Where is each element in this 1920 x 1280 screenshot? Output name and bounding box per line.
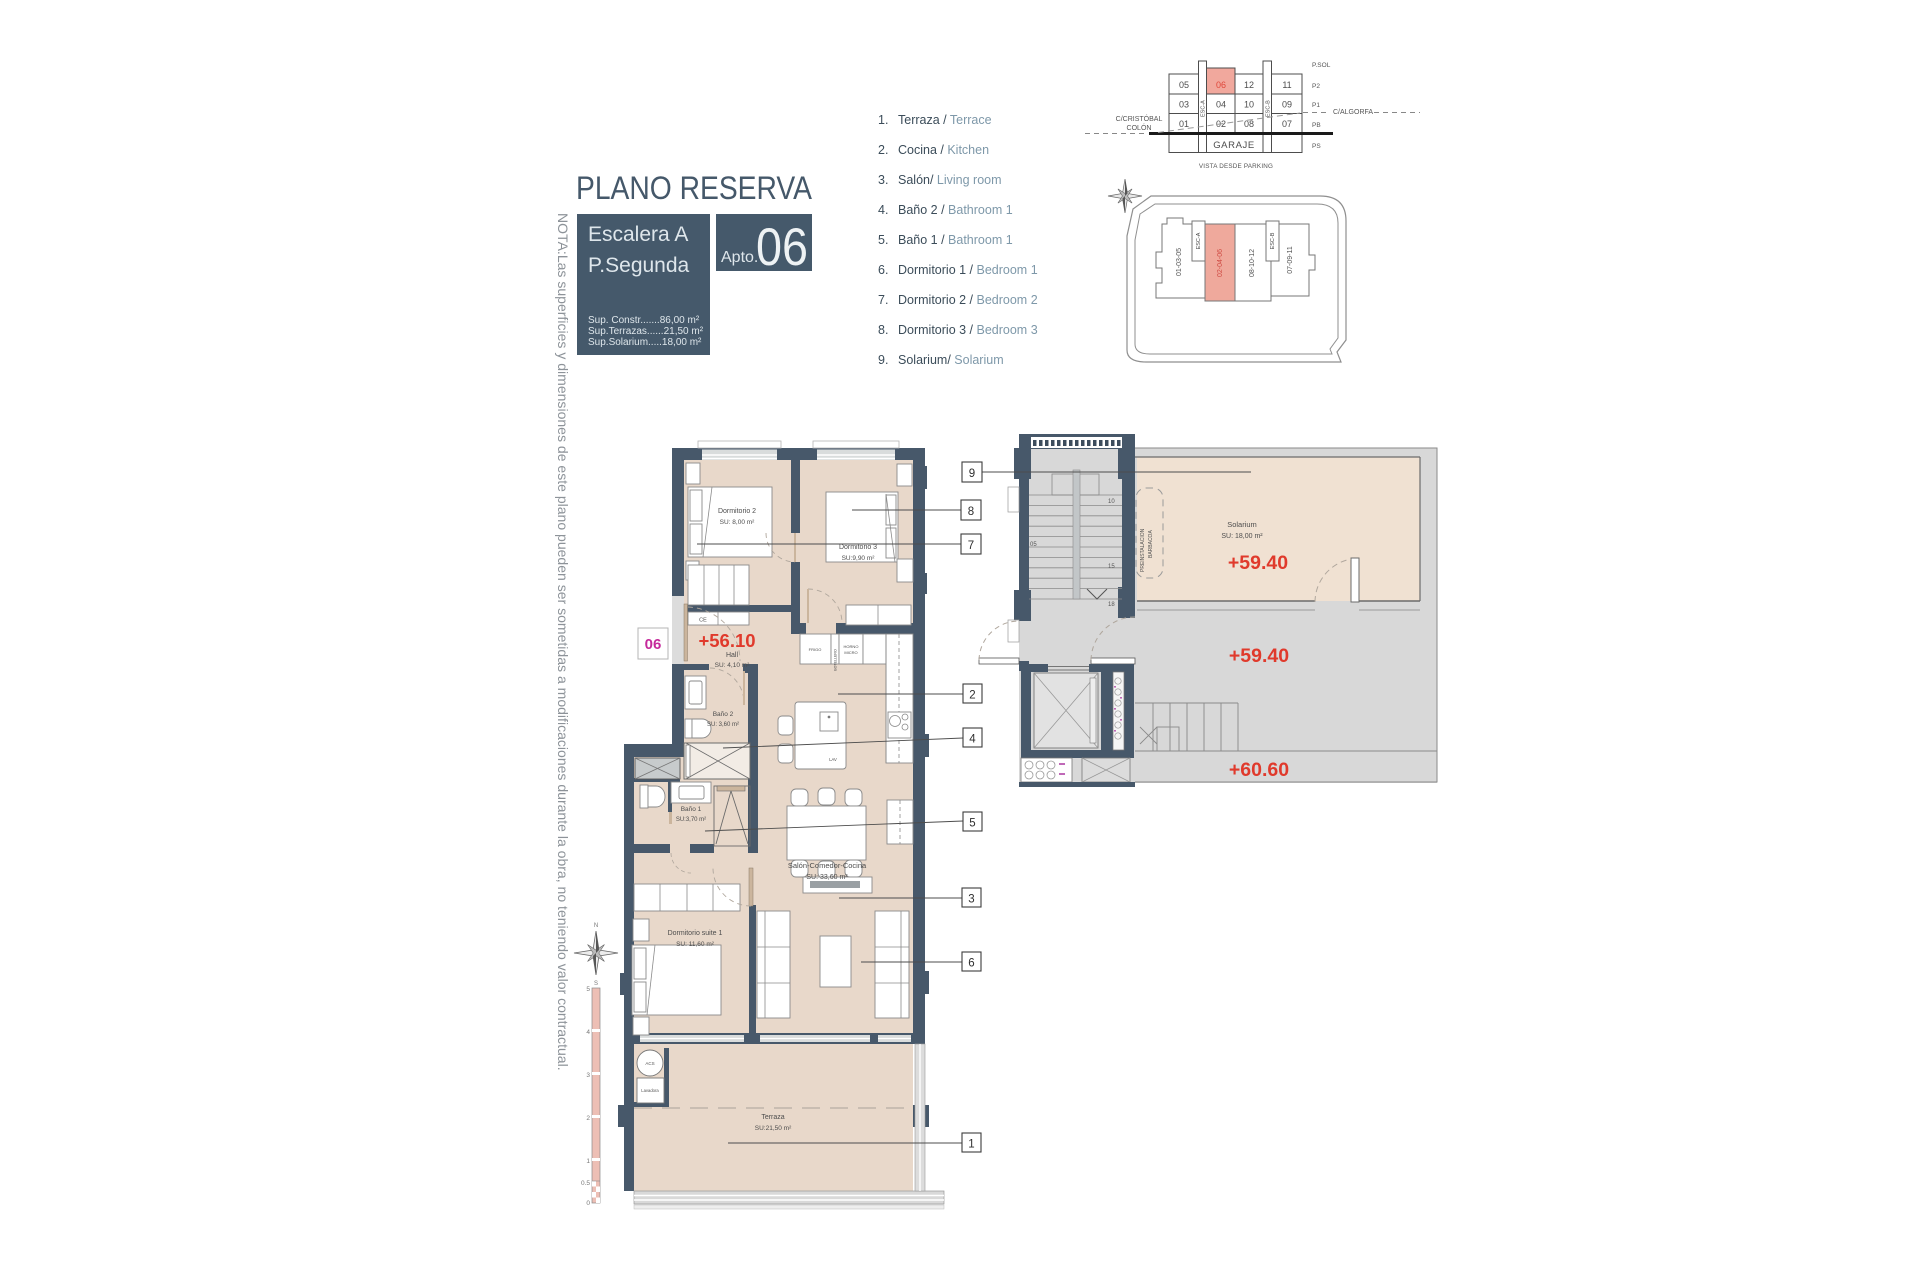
- svg-text:P2: P2: [1312, 83, 1320, 90]
- svg-text:Solarium: Solarium: [1227, 520, 1257, 529]
- svg-text:05: 05: [1179, 80, 1189, 90]
- svg-text:Terraza: Terraza: [761, 1114, 784, 1121]
- svg-text:Sup.Solarium.....18,00 m²: Sup.Solarium.....18,00 m²: [588, 337, 702, 348]
- svg-text:ESC-A: ESC-A: [1201, 100, 1207, 117]
- svg-text:PLANO RESERVA: PLANO RESERVA: [576, 170, 813, 206]
- svg-text:Terraza / Terrace: Terraza / Terrace: [898, 113, 992, 127]
- svg-text:6: 6: [968, 958, 974, 970]
- svg-text:+56.10: +56.10: [698, 630, 755, 651]
- svg-text:C/ALGORFA: C/ALGORFA: [1333, 109, 1373, 116]
- svg-text:8: 8: [968, 506, 974, 518]
- svg-text:Dormitorio 3: Dormitorio 3: [839, 544, 877, 551]
- svg-text:ESC-B: ESC-B: [1266, 100, 1272, 117]
- svg-text:SU: 33,60 m²: SU: 33,60 m²: [806, 874, 848, 881]
- svg-text:07: 07: [1282, 119, 1292, 129]
- svg-text:PREINSTALACION: PREINSTALACION: [1140, 528, 1146, 572]
- svg-text:SU: 18,00 m²: SU: 18,00 m²: [1221, 533, 1263, 540]
- svg-text:Dormitorio 2: Dormitorio 2: [718, 508, 756, 515]
- svg-text:08-10-12: 08-10-12: [1249, 249, 1256, 277]
- svg-text:LAV: LAV: [829, 757, 837, 762]
- svg-text:Escalera A: Escalera A: [588, 223, 688, 246]
- svg-text:CE: CE: [699, 618, 707, 624]
- svg-text:SU: 11,60 m²: SU: 11,60 m²: [676, 941, 715, 948]
- svg-text:2: 2: [969, 690, 975, 702]
- svg-text:3: 3: [586, 1072, 590, 1079]
- svg-text:5: 5: [969, 818, 975, 830]
- svg-text:VISTA DESDE PARKING: VISTA DESDE PARKING: [1199, 163, 1273, 170]
- svg-text:11: 11: [1282, 80, 1291, 90]
- svg-text:SU:9,90 m²: SU:9,90 m²: [842, 555, 876, 562]
- svg-text:+59.40: +59.40: [1228, 552, 1288, 574]
- svg-text:Baño 2 / Bathroom 1: Baño 2 / Bathroom 1: [898, 203, 1013, 217]
- svg-text:4: 4: [586, 1029, 590, 1036]
- svg-text:06: 06: [1216, 80, 1226, 90]
- svg-text:Dormitorio 2 / Bedroom 2: Dormitorio 2 / Bedroom 2: [898, 293, 1038, 307]
- svg-text:Salón/ Living room: Salón/ Living room: [898, 173, 1002, 187]
- svg-text:5.: 5.: [878, 233, 888, 247]
- svg-text:ESC-B: ESC-B: [1270, 232, 1276, 249]
- svg-text:9.: 9.: [878, 353, 888, 367]
- svg-text:07-09-11: 07-09-11: [1287, 246, 1294, 274]
- svg-text:SU:21,50 m²: SU:21,50 m²: [755, 1125, 792, 1132]
- svg-text:15: 15: [1108, 564, 1115, 570]
- svg-text:5: 5: [586, 986, 590, 993]
- svg-text:C/CRISTÓBAL: C/CRISTÓBAL: [1116, 114, 1163, 123]
- svg-text:ESC-A: ESC-A: [1196, 232, 1202, 249]
- svg-text:10: 10: [1108, 499, 1115, 505]
- svg-text:SU: 3,60 m²: SU: 3,60 m²: [707, 722, 739, 728]
- svg-text:10: 10: [1244, 100, 1254, 110]
- svg-text:COLÓN: COLÓN: [1127, 123, 1152, 132]
- svg-text:02-04-06: 02-04-06: [1217, 249, 1224, 277]
- svg-text:8.: 8.: [878, 323, 888, 337]
- svg-text:4: 4: [969, 734, 976, 746]
- svg-text:Sup. Constr.......86,00 m²: Sup. Constr.......86,00 m²: [588, 315, 700, 326]
- svg-text:BOTELLERO: BOTELLERO: [834, 649, 838, 671]
- svg-text:HORNO: HORNO: [844, 644, 859, 649]
- svg-text:6.: 6.: [878, 263, 888, 277]
- svg-text:2.: 2.: [878, 143, 888, 157]
- svg-text:+60.60: +60.60: [1229, 759, 1289, 781]
- svg-text:Dormitorio 3 / Bedroom 3: Dormitorio 3 / Bedroom 3: [898, 323, 1038, 337]
- svg-text:1.: 1.: [878, 113, 888, 127]
- svg-text:BARBACOA: BARBACOA: [1148, 530, 1154, 558]
- svg-text:01-03-05: 01-03-05: [1176, 248, 1183, 276]
- svg-text:1: 1: [586, 1158, 590, 1165]
- svg-text:GARAJE: GARAJE: [1213, 140, 1255, 151]
- svg-text:3: 3: [968, 894, 974, 906]
- svg-text:1: 1: [968, 1139, 974, 1151]
- svg-text:4.: 4.: [878, 203, 888, 217]
- svg-text:Lavadora: Lavadora: [641, 1088, 659, 1093]
- svg-text:SU: 8,00 m²: SU: 8,00 m²: [720, 519, 756, 526]
- svg-text:Baño 1 / Bathroom 1: Baño 1 / Bathroom 1: [898, 233, 1013, 247]
- svg-text:PB: PB: [1312, 122, 1321, 129]
- svg-text:Apto.: Apto.: [721, 249, 758, 266]
- svg-text:0.5: 0.5: [581, 1180, 590, 1187]
- svg-text:Dormitorio 1 / Bedroom 1: Dormitorio 1 / Bedroom 1: [898, 263, 1038, 277]
- svg-text:03: 03: [1179, 100, 1189, 110]
- svg-text:MICRO: MICRO: [844, 650, 857, 655]
- svg-text:SU: 4,10 m²: SU: 4,10 m²: [715, 662, 751, 669]
- svg-text:Sup.Terrazas......21,50 m²: Sup.Terrazas......21,50 m²: [588, 326, 704, 337]
- svg-text:9: 9: [969, 468, 975, 480]
- svg-text:NOTA:Las superficies y dimensi: NOTA:Las superficies y dimensiones de es…: [555, 213, 571, 1071]
- svg-text:Solarium/ Solarium: Solarium/ Solarium: [898, 353, 1004, 367]
- svg-text:+59.40: +59.40: [1229, 645, 1289, 667]
- svg-text:FRIGO: FRIGO: [809, 647, 822, 652]
- svg-text:P1: P1: [1312, 102, 1320, 109]
- svg-text:01: 01: [1179, 119, 1189, 129]
- svg-text:Baño 2: Baño 2: [713, 711, 734, 718]
- svg-text:PS: PS: [1312, 143, 1321, 150]
- svg-text:06: 06: [645, 636, 662, 653]
- svg-text:12: 12: [1244, 80, 1254, 90]
- svg-text:09: 09: [1282, 100, 1292, 110]
- svg-text:7: 7: [968, 540, 974, 552]
- svg-text:05: 05: [1030, 542, 1037, 548]
- svg-text:ACS: ACS: [645, 1061, 654, 1066]
- svg-text:06: 06: [756, 218, 808, 277]
- svg-text:Baño 1: Baño 1: [681, 806, 702, 813]
- svg-text:2: 2: [586, 1115, 590, 1122]
- svg-text:Dormitorio suite 1: Dormitorio suite 1: [668, 930, 723, 937]
- svg-text:P.Segunda: P.Segunda: [588, 254, 690, 277]
- svg-text:04: 04: [1216, 100, 1226, 110]
- svg-text:Hall: Hall: [726, 652, 739, 659]
- svg-text:Salón-Comedor-Cocina: Salón-Comedor-Cocina: [788, 861, 867, 870]
- svg-text:Cocina / Kitchen: Cocina / Kitchen: [898, 143, 989, 157]
- svg-text:N: N: [594, 923, 598, 929]
- svg-text:SU:3,70 m²: SU:3,70 m²: [676, 817, 706, 823]
- svg-text:S: S: [594, 981, 598, 987]
- svg-text:18: 18: [1108, 602, 1115, 608]
- svg-text:0: 0: [586, 1200, 590, 1207]
- svg-text:3.: 3.: [878, 173, 888, 187]
- svg-text:7.: 7.: [878, 293, 888, 307]
- svg-text:P.SOL: P.SOL: [1312, 62, 1331, 69]
